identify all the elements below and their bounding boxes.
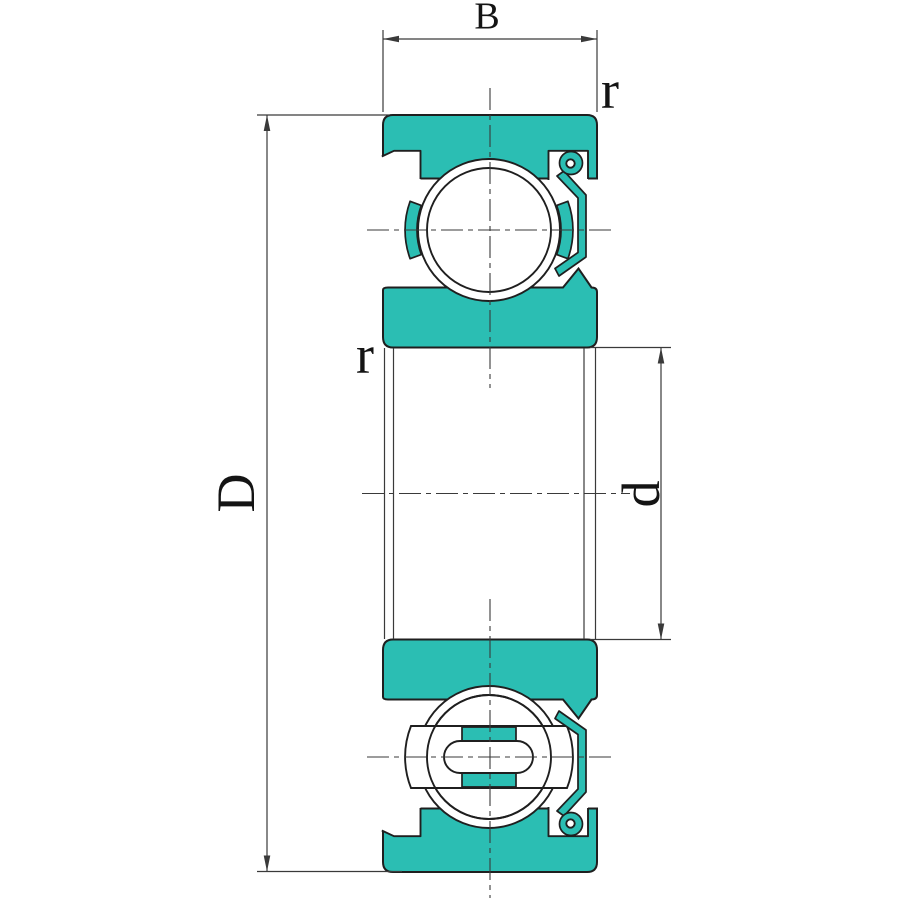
d-outer-label: D bbox=[206, 474, 266, 513]
bearing-cross-section-drawing: B D d r r bbox=[0, 0, 900, 900]
d-bore-arrow-top bbox=[658, 348, 665, 364]
d-outer-arrow-top bbox=[264, 115, 271, 131]
b-arrow-left bbox=[383, 36, 399, 43]
shield-curl-hole-top bbox=[566, 159, 574, 167]
drawing-canvas: B D d r r bbox=[0, 0, 900, 900]
b-arrow-right bbox=[581, 36, 597, 43]
d-outer-arrow-bottom bbox=[264, 856, 271, 872]
d-bore-arrow-bottom bbox=[658, 624, 665, 640]
outer-ring-notch-top-fill bbox=[382, 151, 421, 180]
b-label: B bbox=[474, 0, 499, 38]
bottom-cross-section bbox=[382, 640, 597, 873]
top-cross-section bbox=[382, 115, 597, 348]
d-bore-label: d bbox=[611, 481, 671, 508]
r-outer-label: r bbox=[601, 60, 619, 120]
cage-rivet-block-upper bbox=[462, 727, 516, 741]
shield-curl-hole-bottom bbox=[566, 819, 574, 827]
r-inner-label: r bbox=[356, 325, 374, 385]
cage-rivet-block-lower bbox=[462, 773, 516, 787]
outer-ring-notch-bottom-fill bbox=[382, 807, 421, 836]
